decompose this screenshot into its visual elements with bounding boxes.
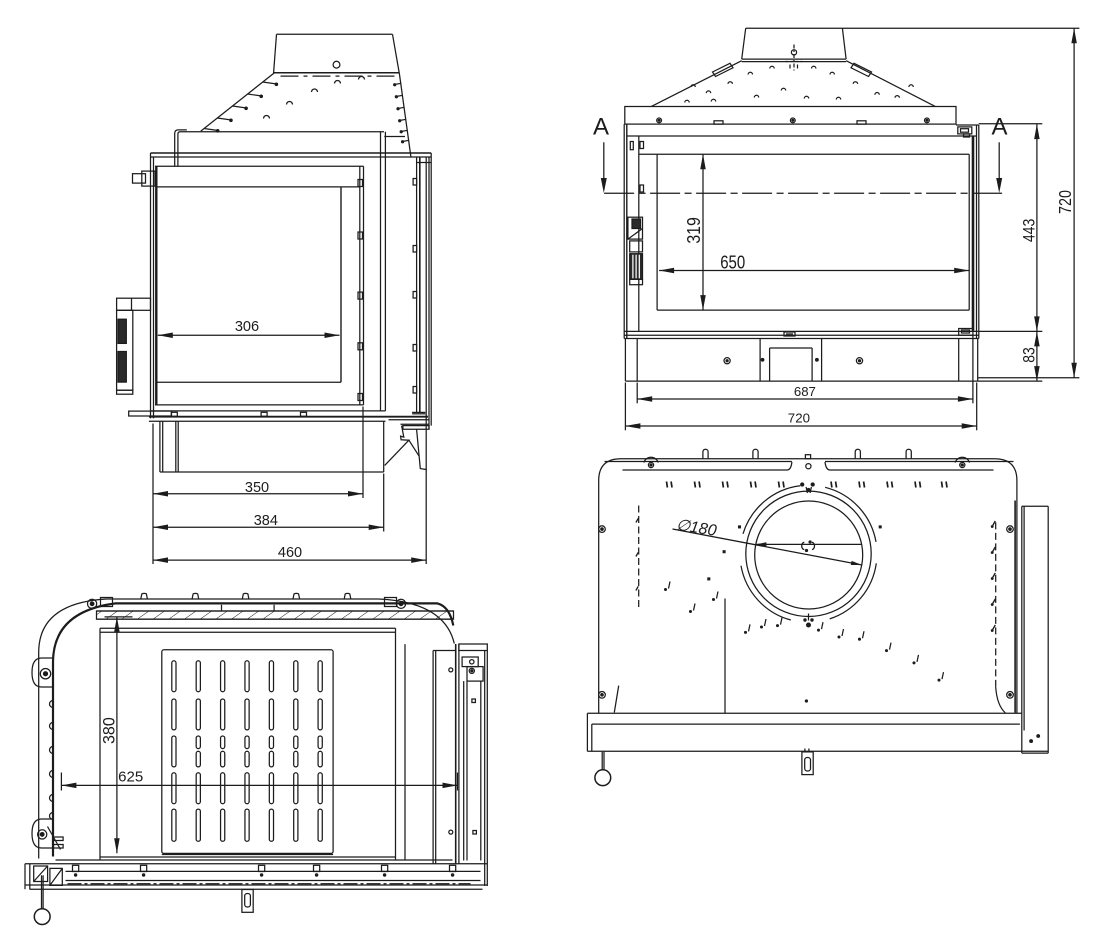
svg-text:384: 384 — [254, 513, 278, 529]
svg-text:319: 319 — [684, 217, 704, 244]
svg-text:380: 380 — [99, 717, 118, 744]
svg-text:625: 625 — [118, 768, 143, 785]
svg-text:A: A — [991, 114, 1007, 141]
svg-text:306: 306 — [235, 319, 259, 335]
svg-text:687: 687 — [794, 384, 816, 399]
svg-text:83: 83 — [1021, 347, 1039, 363]
svg-text:443: 443 — [1021, 219, 1039, 243]
svg-text:720: 720 — [1055, 190, 1075, 214]
svg-text:A: A — [593, 114, 609, 141]
svg-text:720: 720 — [788, 411, 810, 426]
svg-text:350: 350 — [245, 480, 269, 496]
svg-text:460: 460 — [278, 545, 302, 561]
svg-text:650: 650 — [720, 251, 745, 272]
